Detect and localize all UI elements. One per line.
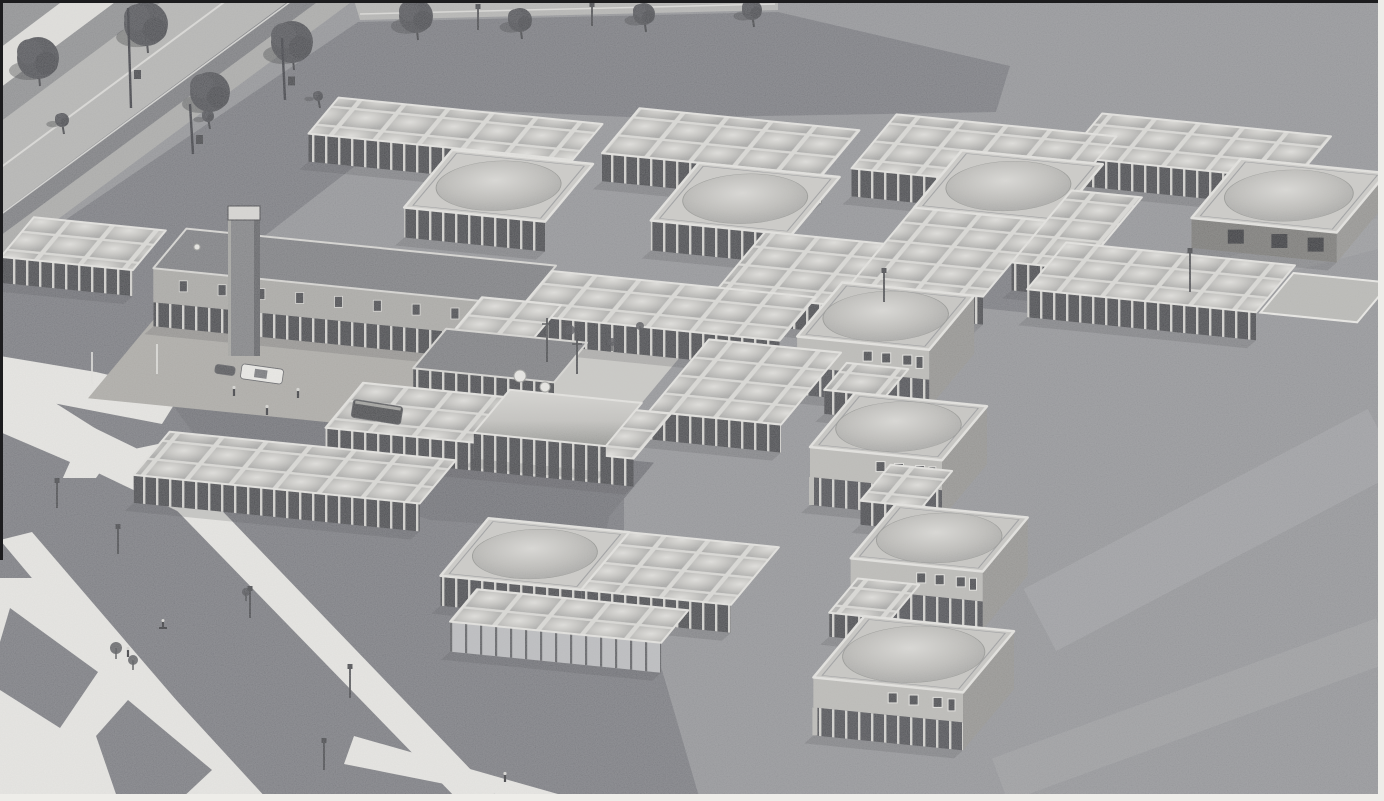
border-right <box>1378 0 1384 801</box>
border-left <box>0 0 3 560</box>
border-bottom <box>0 794 1384 801</box>
border-top <box>0 0 1384 3</box>
aerial-photo-figure <box>0 0 1384 801</box>
photo-grain-overlay <box>0 0 1384 801</box>
aerial-photo <box>0 0 1384 801</box>
